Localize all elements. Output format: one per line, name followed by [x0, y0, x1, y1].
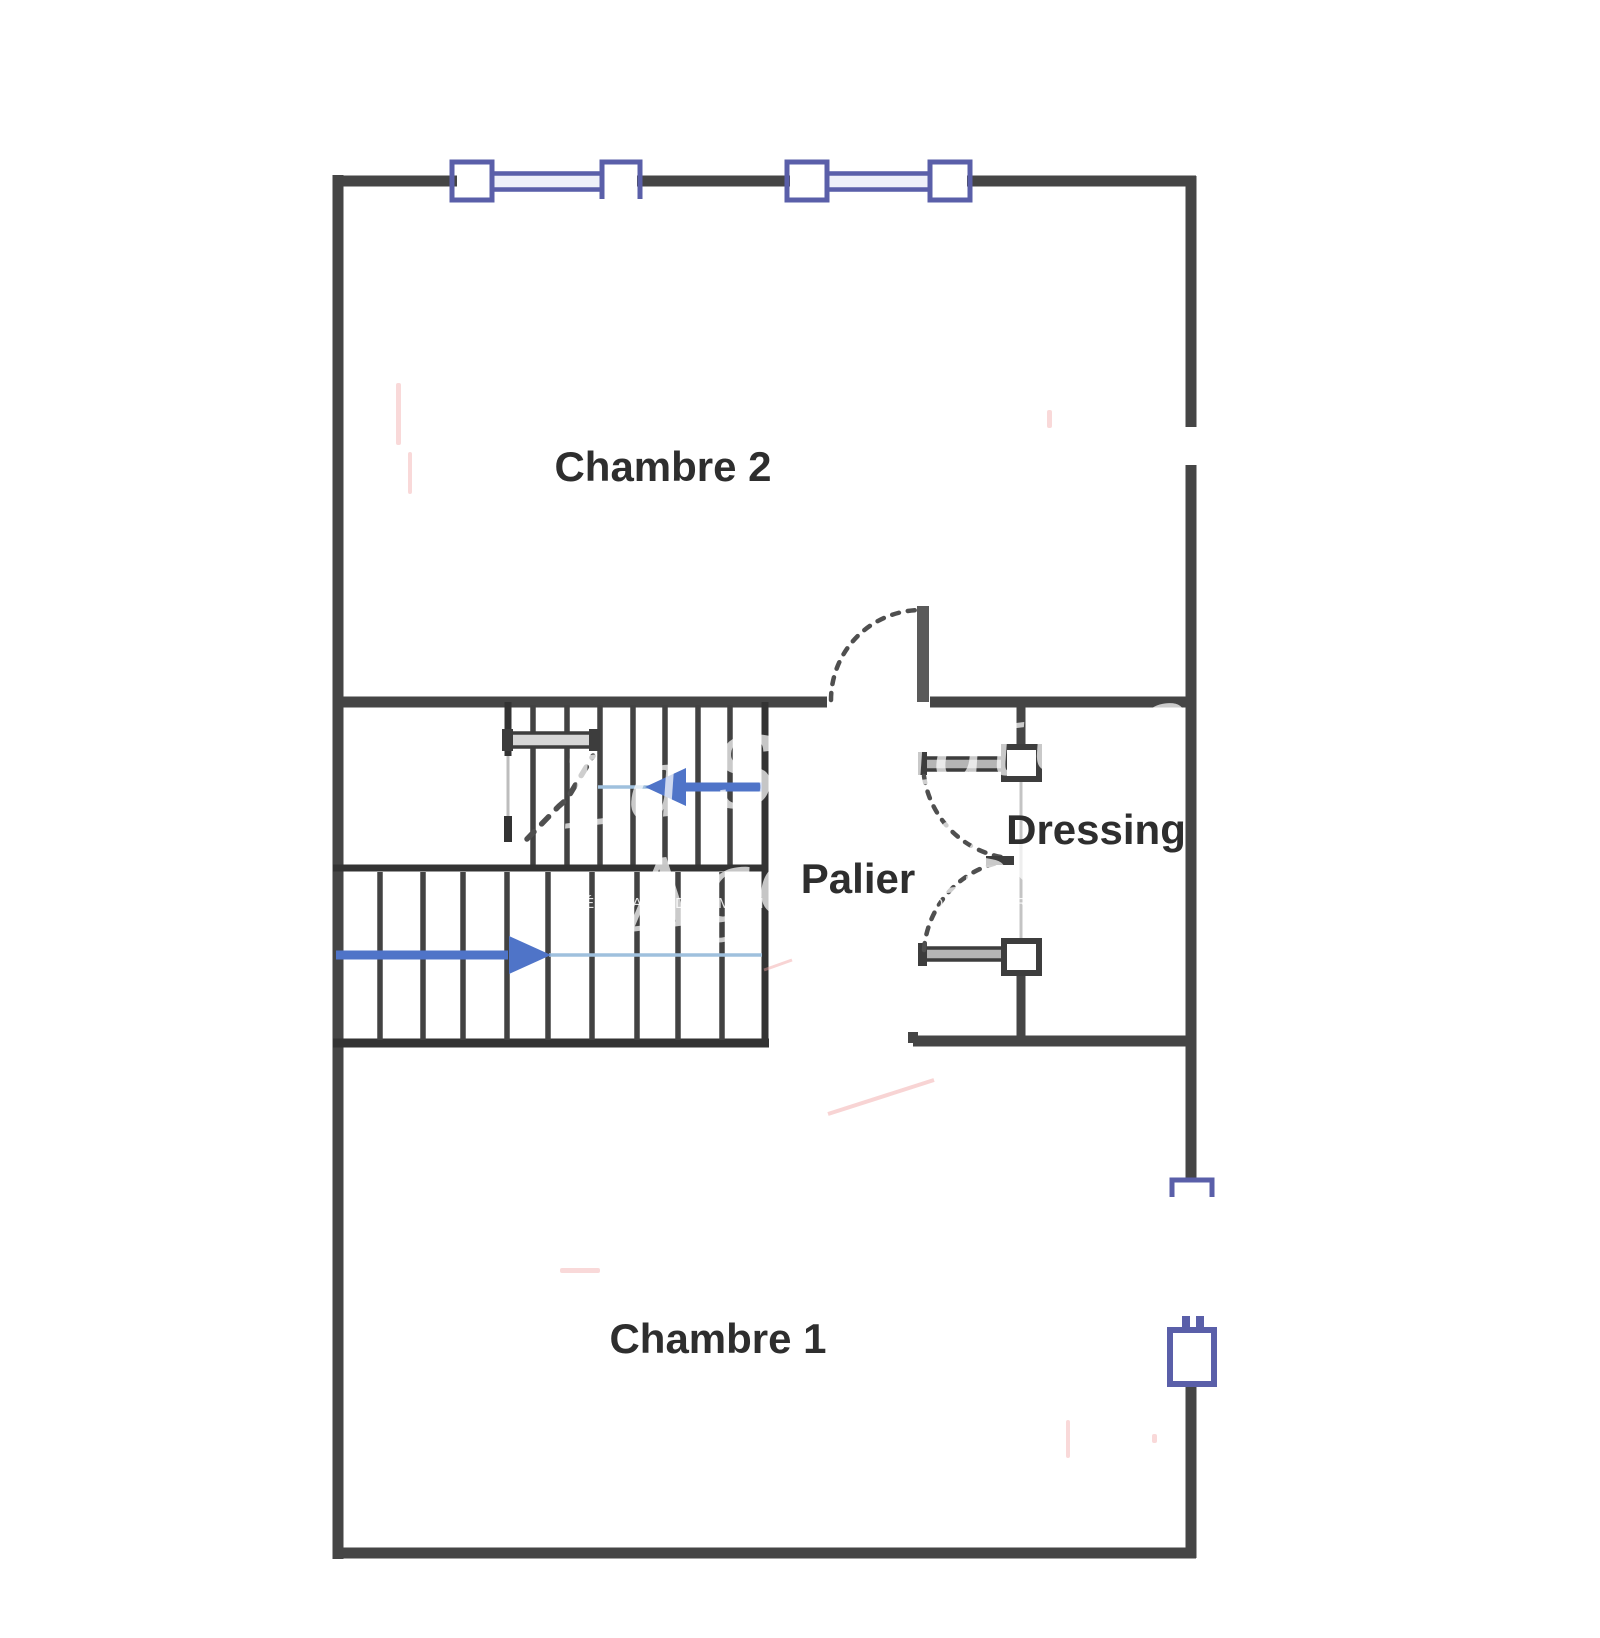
stair-direction-arrow-right	[509, 936, 551, 974]
room-label-chambre2: Chambre 2	[554, 443, 771, 490]
door-chambre2	[831, 606, 923, 702]
door-swing-arc	[831, 610, 921, 700]
door-post	[1004, 941, 1039, 973]
artifact-mark	[396, 383, 401, 445]
window-top-1	[452, 162, 640, 200]
wall-end-cap	[908, 1032, 918, 1043]
room-label-palier: Palier	[801, 855, 915, 902]
floor-plan-page: La Signature Agenaise RÉSEAU DE MANDATAI…	[0, 0, 1600, 1638]
floor-plan-drawing: La Signature Agenaise RÉSEAU DE MANDATAI…	[0, 0, 1600, 1638]
artifact-mark	[408, 452, 412, 494]
window-end-cap	[452, 162, 492, 200]
window-end-cap-open	[602, 162, 640, 199]
window-end-cap	[930, 162, 970, 200]
room-label-chambre1: Chambre 1	[609, 1315, 826, 1362]
artifact-mark	[560, 1268, 600, 1273]
artifact-mark	[1152, 1434, 1157, 1443]
artifact-mark	[1066, 1420, 1070, 1458]
artifact-mark	[1047, 410, 1052, 428]
door-jamb-cap	[1172, 1180, 1212, 1197]
stair-rail-cap	[502, 729, 513, 751]
window-box	[1170, 1330, 1214, 1384]
door-leaf-fill	[922, 949, 1004, 959]
room-label-dressing: Dressing	[1006, 806, 1186, 853]
right-wall-opening-symbols	[1170, 1180, 1214, 1384]
artifact-mark	[828, 1080, 934, 1114]
window-end-cap	[787, 162, 827, 200]
window-top-2	[787, 162, 970, 200]
